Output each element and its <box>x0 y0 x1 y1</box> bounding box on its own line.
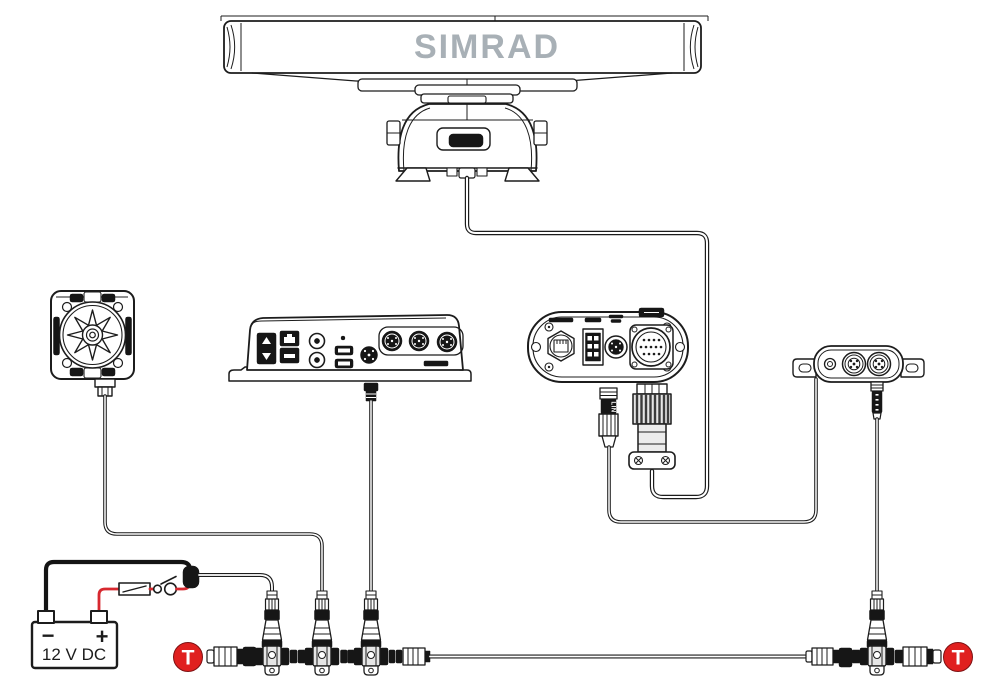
t-connector-2 <box>305 646 339 675</box>
terminator-symbol-right: T <box>952 647 965 670</box>
lin-connector: LIN <box>599 388 618 447</box>
backbone-terminator-right <box>895 647 941 666</box>
drop-connector-remote <box>867 591 887 648</box>
drop-connectors <box>262 591 887 648</box>
backbone-cable-connector-right <box>806 648 860 667</box>
backbone-terminator-left <box>207 647 256 666</box>
drop-connector-power <box>262 591 282 648</box>
power-port <box>257 333 276 364</box>
positive-wire <box>99 589 119 611</box>
drop-adapter <box>871 382 883 419</box>
radar-pedestal <box>387 85 547 181</box>
wiring-diagram-canvas: SIMRAD <box>0 0 1000 684</box>
pedestal-handle <box>449 134 483 147</box>
antenna-array: SIMRAD <box>221 16 708 91</box>
device-port-2 <box>868 353 891 376</box>
lin-label: LIN <box>610 402 616 413</box>
t-connector-4 <box>860 646 894 675</box>
t-connector-1 <box>255 646 289 675</box>
terminator-badge-right: T <box>944 643 973 672</box>
nmea2000-backbone: T <box>174 591 973 675</box>
processor-drop-connector <box>364 383 378 401</box>
brand-logo: SIMRAD <box>414 28 560 66</box>
backbone-cable-connector-left <box>389 648 430 665</box>
terminator-badge-left: T <box>174 643 203 672</box>
battery: − + 12 V DC <box>32 611 117 668</box>
installation-diagram: SIMRAD <box>0 0 1000 684</box>
fuse <box>119 583 150 595</box>
radar-plug <box>629 384 675 469</box>
t-connector-3 <box>354 646 388 675</box>
processor-unit <box>229 315 471 591</box>
drop-connector-processor <box>361 591 381 648</box>
terminator-symbol-left: T <box>182 647 195 670</box>
power-switch <box>154 577 177 595</box>
drop-connector-heading <box>312 591 332 648</box>
radar-interface-unit: LIN <box>528 308 816 522</box>
battery-voltage-label: 12 V DC <box>42 645 106 664</box>
radar-scanner: SIMRAD <box>221 16 708 497</box>
remote-device <box>793 346 924 591</box>
network-round-ports <box>382 331 457 352</box>
cable-junction <box>183 566 199 588</box>
device-port-1 <box>843 353 866 376</box>
aux-round-port <box>361 347 378 364</box>
power-drop-cable <box>199 575 272 591</box>
